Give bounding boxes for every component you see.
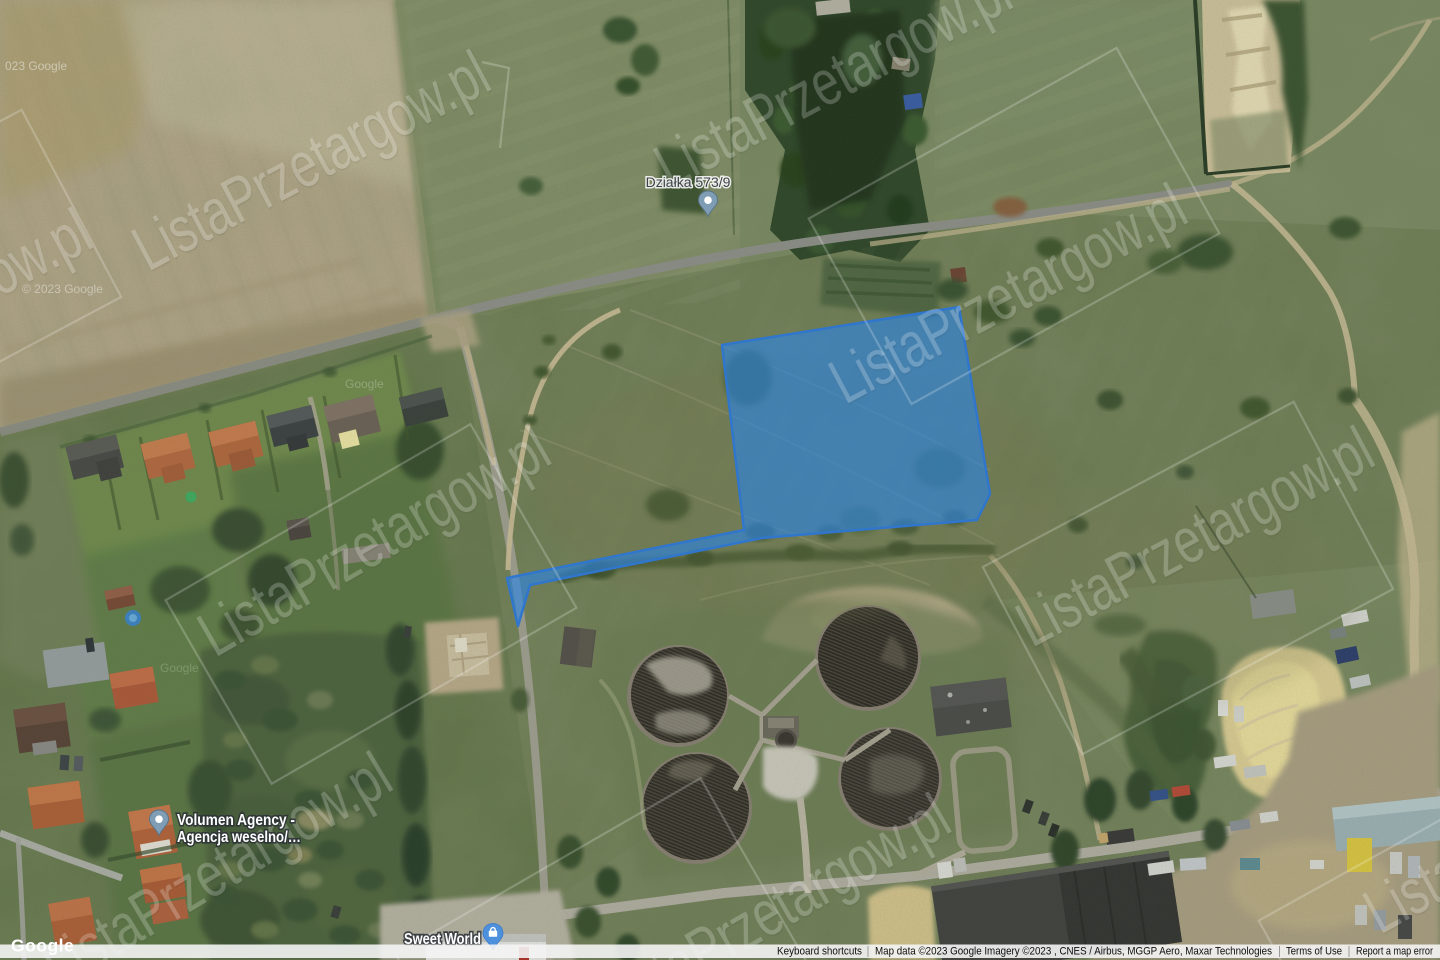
svg-text:Google: Google [160,661,199,675]
svg-text:Volumen Agency -: Volumen Agency - [177,812,295,829]
svg-text:Agencja weselno/…: Agencja weselno/… [177,829,301,846]
svg-text:023 Google: 023 Google [5,59,67,73]
svg-text:© 2023 Google: © 2023 Google [22,282,103,296]
svg-text:Keyboard shortcuts: Keyboard shortcuts [777,946,862,958]
svg-text:Działka 573/9: Działka 573/9 [646,174,731,190]
svg-text:Terms of Use: Terms of Use [1286,946,1342,958]
svg-text:Google: Google [11,936,74,956]
svg-text:Report a map error: Report a map error [1356,946,1433,958]
svg-text:Google: Google [345,377,384,391]
svg-text:Map data ©2023 Google Imagery: Map data ©2023 Google Imagery ©2023 , CN… [875,946,1272,958]
